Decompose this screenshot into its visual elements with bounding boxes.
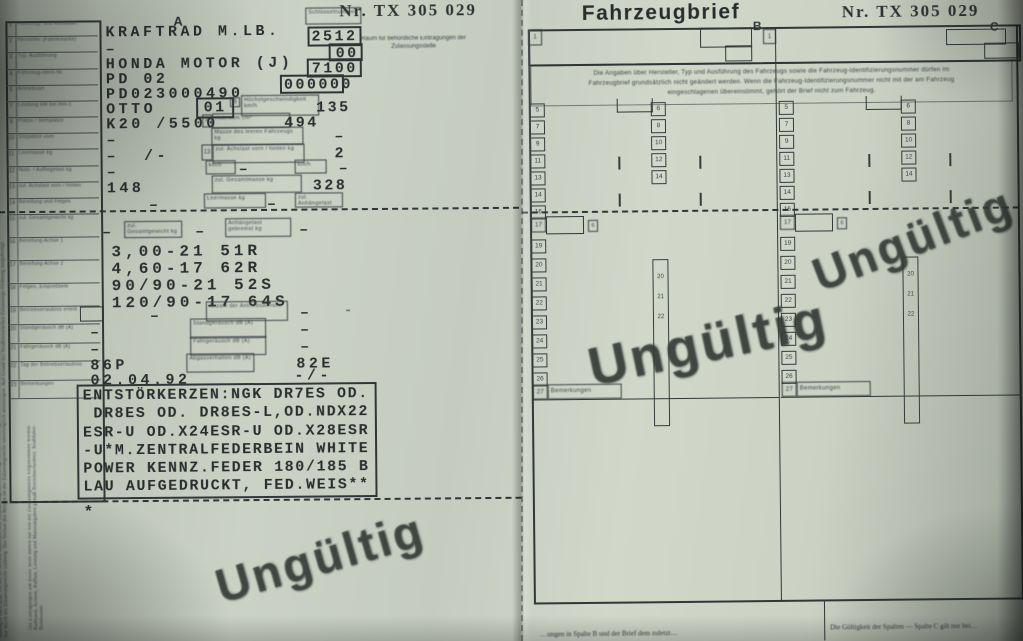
- dash-value: –: [102, 224, 115, 241]
- bemerkungen-row-number-b: 27: [533, 384, 548, 399]
- dash-value: –: [195, 223, 208, 240]
- field-number: 7: [6, 102, 17, 117]
- page-fold-dashed-line: [521, 0, 523, 641]
- dash-value: –: [106, 132, 119, 149]
- dash-slash-value: – /-: [106, 148, 169, 166]
- field-label: Sitzplätze vorn: [17, 134, 98, 150]
- field-label: Hersteller (Fabrikmarke): [17, 37, 98, 53]
- field-number: 3: [6, 53, 17, 68]
- row-number-cell: 13: [530, 171, 545, 185]
- strip-number: 21: [657, 294, 664, 300]
- field-number: 12: [7, 167, 18, 182]
- b-row-numbers-top: 57911131416: [530, 103, 546, 219]
- c-center-numbers: 68101214: [901, 99, 917, 181]
- field-label: Plätze / Stehplätze: [17, 117, 98, 133]
- row-number-cell: 25: [532, 353, 547, 367]
- field-label-row: 3 Typ, Ausführung: [6, 53, 98, 70]
- field-label: zul. Gesamtgewicht kg: [18, 214, 99, 237]
- field-number: 5: [6, 86, 17, 101]
- small-pair-box: [80, 306, 104, 321]
- row-number-cell: 14: [531, 188, 546, 202]
- entry-tick: [619, 194, 621, 207]
- dash-value: –: [150, 308, 163, 325]
- field-label-row: 15 zul. Gesamtgewicht kg: [7, 214, 99, 238]
- curb-mass-value: 148: [107, 180, 145, 197]
- row-number-cell: 8: [901, 116, 916, 130]
- remarks-text: ENTSTÖRKERZEN:NGK DR7ES OD. DR8ES OD. DR…: [83, 385, 372, 494]
- top-band-right-box-2: [984, 42, 1019, 58]
- field-label-row: 7 Leistung kW bei min-1: [6, 101, 98, 118]
- field-number: 11: [7, 150, 18, 165]
- entry-tick: [949, 153, 951, 166]
- field-label: Nutz- / Aufliegelast kg: [18, 166, 99, 182]
- row-number-cell: 12: [651, 153, 666, 167]
- entry-tick: [869, 191, 871, 204]
- dash-value: –: [107, 164, 120, 181]
- field-label: Antriebsart: [17, 85, 98, 101]
- row-17-box-b: [546, 216, 584, 234]
- strip-number: 22: [658, 314, 665, 320]
- row-number-cell: 14: [651, 170, 666, 184]
- field-label-row: 2 Hersteller (Fabrikmarke): [6, 37, 98, 54]
- field-label: Fahrzeug-Ident-Nr.: [17, 69, 98, 85]
- field-label-row: 5 Antriebsart: [6, 85, 98, 102]
- row-number-cell: 14: [901, 167, 916, 181]
- cell-number-8: 8: [202, 114, 212, 127]
- row-number-cell: 9: [530, 137, 545, 151]
- field-number: 4: [6, 70, 17, 85]
- row-number-cell: 5: [779, 101, 794, 115]
- field-number: 10: [6, 134, 17, 149]
- row-number-cell: 7: [779, 118, 794, 132]
- serial-number: Nr. TX 305 029: [339, 0, 477, 21]
- row-number-cell: 20: [531, 258, 546, 272]
- field-label: Leermasse kg: [18, 150, 99, 166]
- row-number-cell: 10: [651, 136, 666, 150]
- header-note: Raum für behördliche Eintragungen der Zu…: [350, 34, 478, 51]
- column-legal-text: Die Eintragungen auf dieser Seite dürfen…: [27, 402, 81, 630]
- field-number: 1: [5, 21, 16, 36]
- vehicle-kind-value: KRAFTRAD M.LB.: [105, 23, 280, 42]
- bemerkungen-row-number-c: 27: [782, 382, 797, 397]
- cell-number-6: 6: [230, 97, 240, 107]
- row-number-cell: 12: [901, 150, 916, 164]
- notch-box-b: [617, 98, 653, 112]
- b-center-numbers: 68101214: [651, 102, 667, 184]
- strip-number: 20: [657, 274, 664, 280]
- gross-weight-label-box: zul. Gesamtgewicht kg: [124, 221, 182, 239]
- dash-value: –: [300, 322, 313, 339]
- row-number-cell: 6: [901, 99, 916, 113]
- row-number-cell: 8: [651, 119, 666, 133]
- field-label-row: 1 Fahrzeug- und Aufbauart: [5, 20, 97, 37]
- row-number-cell: 6: [651, 102, 666, 116]
- entry-tick: [699, 156, 701, 169]
- dash-value: –: [334, 128, 347, 145]
- field-label: Bereifung Achse 2: [18, 260, 99, 283]
- field-label: Leistung kW bei min-1: [17, 101, 98, 117]
- scanned-document-photo: A Schlüsselnummer Nr. TX 305 029 Raum fü…: [0, 0, 1023, 641]
- field-label-rows-top: 1 Fahrzeug- und Aufbauart 2 Hersteller (…: [5, 20, 99, 215]
- field-label-row: 4 Fahrzeug-Ident-Nr.: [6, 69, 98, 86]
- field-label: Typ, Ausführung: [17, 53, 98, 69]
- kmh-label-box: km/h: [295, 159, 327, 173]
- footer-note-right: Die Gültigkeit der Spalten — Spalte C gi…: [830, 621, 1020, 631]
- footer-divider: [824, 599, 825, 640]
- trailer-braked-label-box: Anhängelast gebremst kg: [225, 218, 291, 238]
- field-number: 9: [6, 118, 17, 133]
- row-number-cell: 19: [531, 239, 546, 253]
- row-number-cell: 7: [530, 120, 545, 134]
- entry-tick: [700, 193, 702, 206]
- kmh-label-box: km/h: [206, 160, 236, 174]
- field-label: zul. Achslast vorn / hinten: [18, 182, 99, 198]
- document-title: Fahrzeugbrief: [582, 0, 741, 26]
- field-number: 2: [6, 37, 17, 52]
- bottom-line: [534, 597, 1022, 604]
- strip-number: 21: [907, 292, 914, 298]
- field-label: Bereifung Achse 1: [18, 237, 99, 260]
- empty-mass-label-box: Masse des leeren Fahrzeugs kg: [211, 127, 303, 146]
- trailer-load-label-box: zul. Anhängelast kg: [295, 192, 343, 207]
- row-number-cell: 13: [779, 169, 794, 183]
- row-number-cell: 19: [780, 237, 795, 251]
- c-center-strip: 202122: [902, 256, 920, 423]
- field-label: Standgeräusch dB (A): [19, 325, 100, 343]
- row-17-cell-c: 17: [780, 215, 795, 230]
- field-label-row: 11 Leermasse kg: [7, 150, 99, 167]
- faint-dash: -: [344, 303, 355, 319]
- bemerkungen-label-c: Bemerkungen: [797, 381, 871, 397]
- top-speed-value: 135: [316, 99, 351, 116]
- footer-note-left: …ungen in Spalte B und der Brief dem zul…: [540, 628, 820, 639]
- row-number-cell: 11: [530, 154, 545, 168]
- row-number-cell: 10: [901, 133, 916, 147]
- dash-value: –: [299, 222, 312, 239]
- aux-cell-b: 6: [588, 220, 598, 232]
- aux-cell-c: 6: [837, 217, 847, 229]
- field-label-row: 10 Sitzplätze vorn: [6, 134, 98, 151]
- field-label: Tag der Betriebserlaubnis: [19, 362, 100, 380]
- field-label-row: 13 zul. Achslast vorn / hinten: [7, 182, 99, 199]
- row-number-cell: 5: [530, 103, 545, 117]
- total-mass-label-box: zul. Gesamtmasse kg: [212, 175, 302, 194]
- field-number: 13: [7, 183, 18, 198]
- c-row-numbers-top: 57911131416: [779, 101, 795, 217]
- cell-number-13: 13: [201, 144, 212, 160]
- b-row-numbers-low: 1920212223242526: [531, 239, 548, 386]
- row-number-cell: 14: [780, 186, 795, 200]
- field-label: Fahrzeug- und Aufbauart: [16, 20, 97, 36]
- dash-value: –: [90, 324, 103, 341]
- row-number-cell: 11: [779, 152, 794, 166]
- field-label: Felgen, Einpreßtiefe: [19, 283, 100, 306]
- footnote-star: *: [84, 503, 97, 521]
- entry-tick: [868, 154, 870, 167]
- top-band-inner-box-2: [725, 45, 752, 61]
- entry-tick: [618, 157, 620, 170]
- field-label-row: 12 Nutz- / Aufliegelast kg: [7, 166, 99, 183]
- row-number-cell: 24: [532, 334, 547, 348]
- intro-paragraph: Die Angaben über Hersteller, Typ und Aus…: [530, 60, 1012, 106]
- row-17-box-c: [795, 213, 833, 231]
- strip-number: 22: [908, 312, 915, 318]
- row-number-cell: 23: [532, 315, 547, 329]
- strip-number: 20: [907, 272, 914, 278]
- field-label-row: 9 Plätze / Stehplätze: [6, 117, 98, 134]
- notch-box-c: [866, 96, 902, 110]
- row-number-cell: 22: [532, 296, 547, 310]
- remarks-line: LAU AUFGEDRUCKT, FED.WEIS**: [83, 477, 371, 498]
- field-label: Fahrgeräusch dB (A): [19, 343, 100, 361]
- field-number: 15: [7, 215, 18, 237]
- dash-value: –: [339, 160, 352, 177]
- row-17-cell-b: 17: [531, 217, 546, 232]
- noise-label-box: Abgasverhalten dB (A): [186, 353, 254, 373]
- mass-label-box: Leermasse kg: [204, 193, 266, 209]
- dash-value: –: [90, 341, 103, 358]
- dash-value: –: [300, 305, 313, 322]
- row-number-cell: 21: [532, 277, 547, 291]
- variant-key-box: 000000: [280, 74, 344, 94]
- row-number-cell: 9: [779, 135, 794, 149]
- right-border: [1016, 24, 1023, 599]
- serial-number: Nr. TX 305 029: [842, 1, 980, 22]
- dash-value: –: [300, 339, 313, 356]
